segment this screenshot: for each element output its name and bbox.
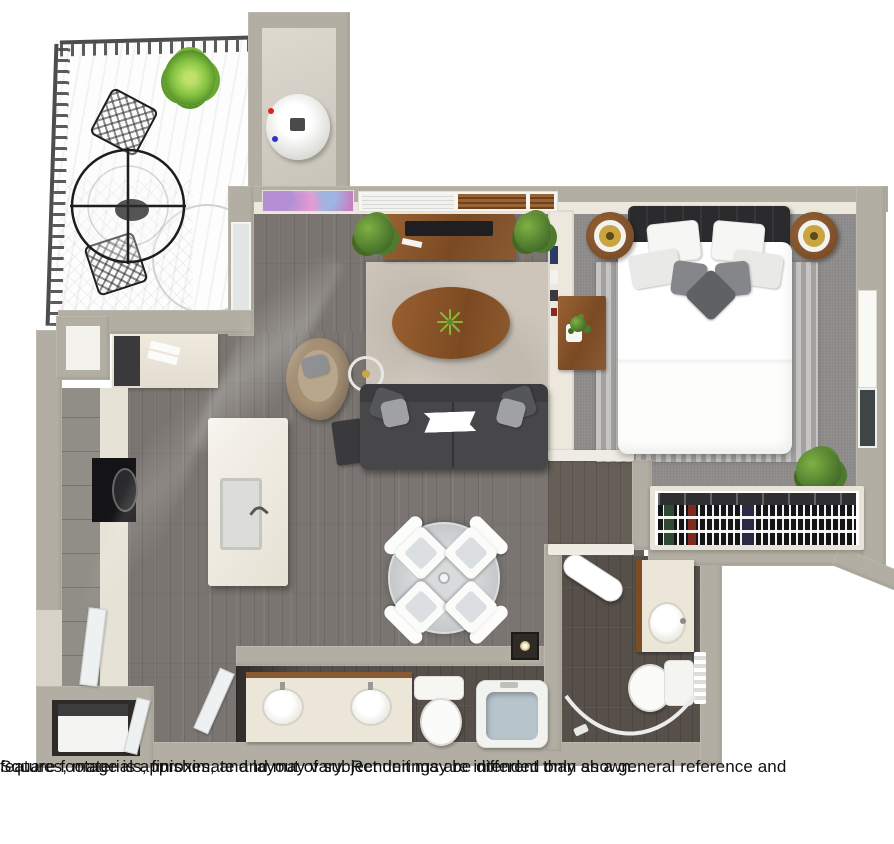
pantry-interior — [66, 326, 100, 370]
dining-table-center — [438, 572, 450, 584]
bedroom-window-frame — [858, 290, 877, 388]
closet-clothes-red — [688, 505, 696, 545]
bathtub-faucet — [500, 682, 518, 688]
patio-table — [66, 144, 190, 268]
toilet-tank — [414, 676, 464, 700]
closet-clothes-navy — [742, 505, 754, 545]
bathroom-sink — [262, 688, 304, 726]
wall-art — [262, 190, 354, 212]
closet-rod — [658, 530, 856, 533]
sofa-pillow — [380, 398, 411, 429]
bathroom-faucet — [368, 682, 373, 690]
floor-lamp-bulb — [362, 370, 370, 378]
water-heater-cap — [290, 118, 305, 131]
ensuite-door-trim — [548, 544, 634, 555]
patio-glass-door — [231, 222, 251, 314]
candle — [520, 641, 530, 651]
ensuite-faucet — [680, 618, 686, 624]
wall-shelf-book — [551, 308, 557, 316]
living-window-blinds-white — [362, 194, 454, 209]
plant — [514, 212, 552, 252]
bathroom-faucet — [280, 682, 285, 690]
lamp-finial — [810, 232, 818, 240]
wall-shelf-book — [550, 270, 558, 284]
sofa-throw — [424, 411, 477, 433]
hot-pipe-dot — [268, 108, 274, 114]
desk-plant — [570, 316, 586, 332]
shower-rod — [560, 688, 700, 746]
entry-doorway-gap — [36, 610, 62, 694]
bathroom-top-wall — [236, 646, 544, 666]
cold-pipe-dot — [272, 136, 278, 142]
closet-hall-jamb — [632, 460, 652, 550]
closet-rod — [658, 516, 856, 519]
bathtub-basin — [486, 692, 538, 740]
toilet-bowl — [420, 698, 462, 746]
bedroom-window-pane — [858, 388, 877, 448]
living-window-blinds-wood — [458, 194, 526, 209]
wall-shelf-book — [550, 246, 558, 264]
closet-clothes-green — [664, 505, 674, 545]
bedroom-hall-floor — [548, 454, 644, 558]
wall-shelf-book — [550, 290, 558, 301]
washer-panel — [58, 704, 128, 716]
plant — [354, 214, 394, 254]
disclaimer-line-2: features, materials, finishes, and layou… — [0, 756, 636, 779]
table-plant — [436, 308, 464, 336]
kitchen-appliance — [114, 336, 140, 386]
bathroom-vanity-edge — [246, 672, 412, 678]
bathroom-sink — [350, 688, 392, 726]
ensuite-vanity-edge — [636, 560, 642, 652]
range-pot — [112, 468, 138, 512]
closet-shelf — [658, 493, 856, 505]
balcony-plant — [164, 50, 216, 106]
living-window-blinds-wood — [530, 194, 554, 209]
floorplan-rendering: Square footage is approximate and may va… — [0, 0, 894, 844]
lamp-finial — [606, 232, 614, 240]
tv — [405, 221, 493, 236]
